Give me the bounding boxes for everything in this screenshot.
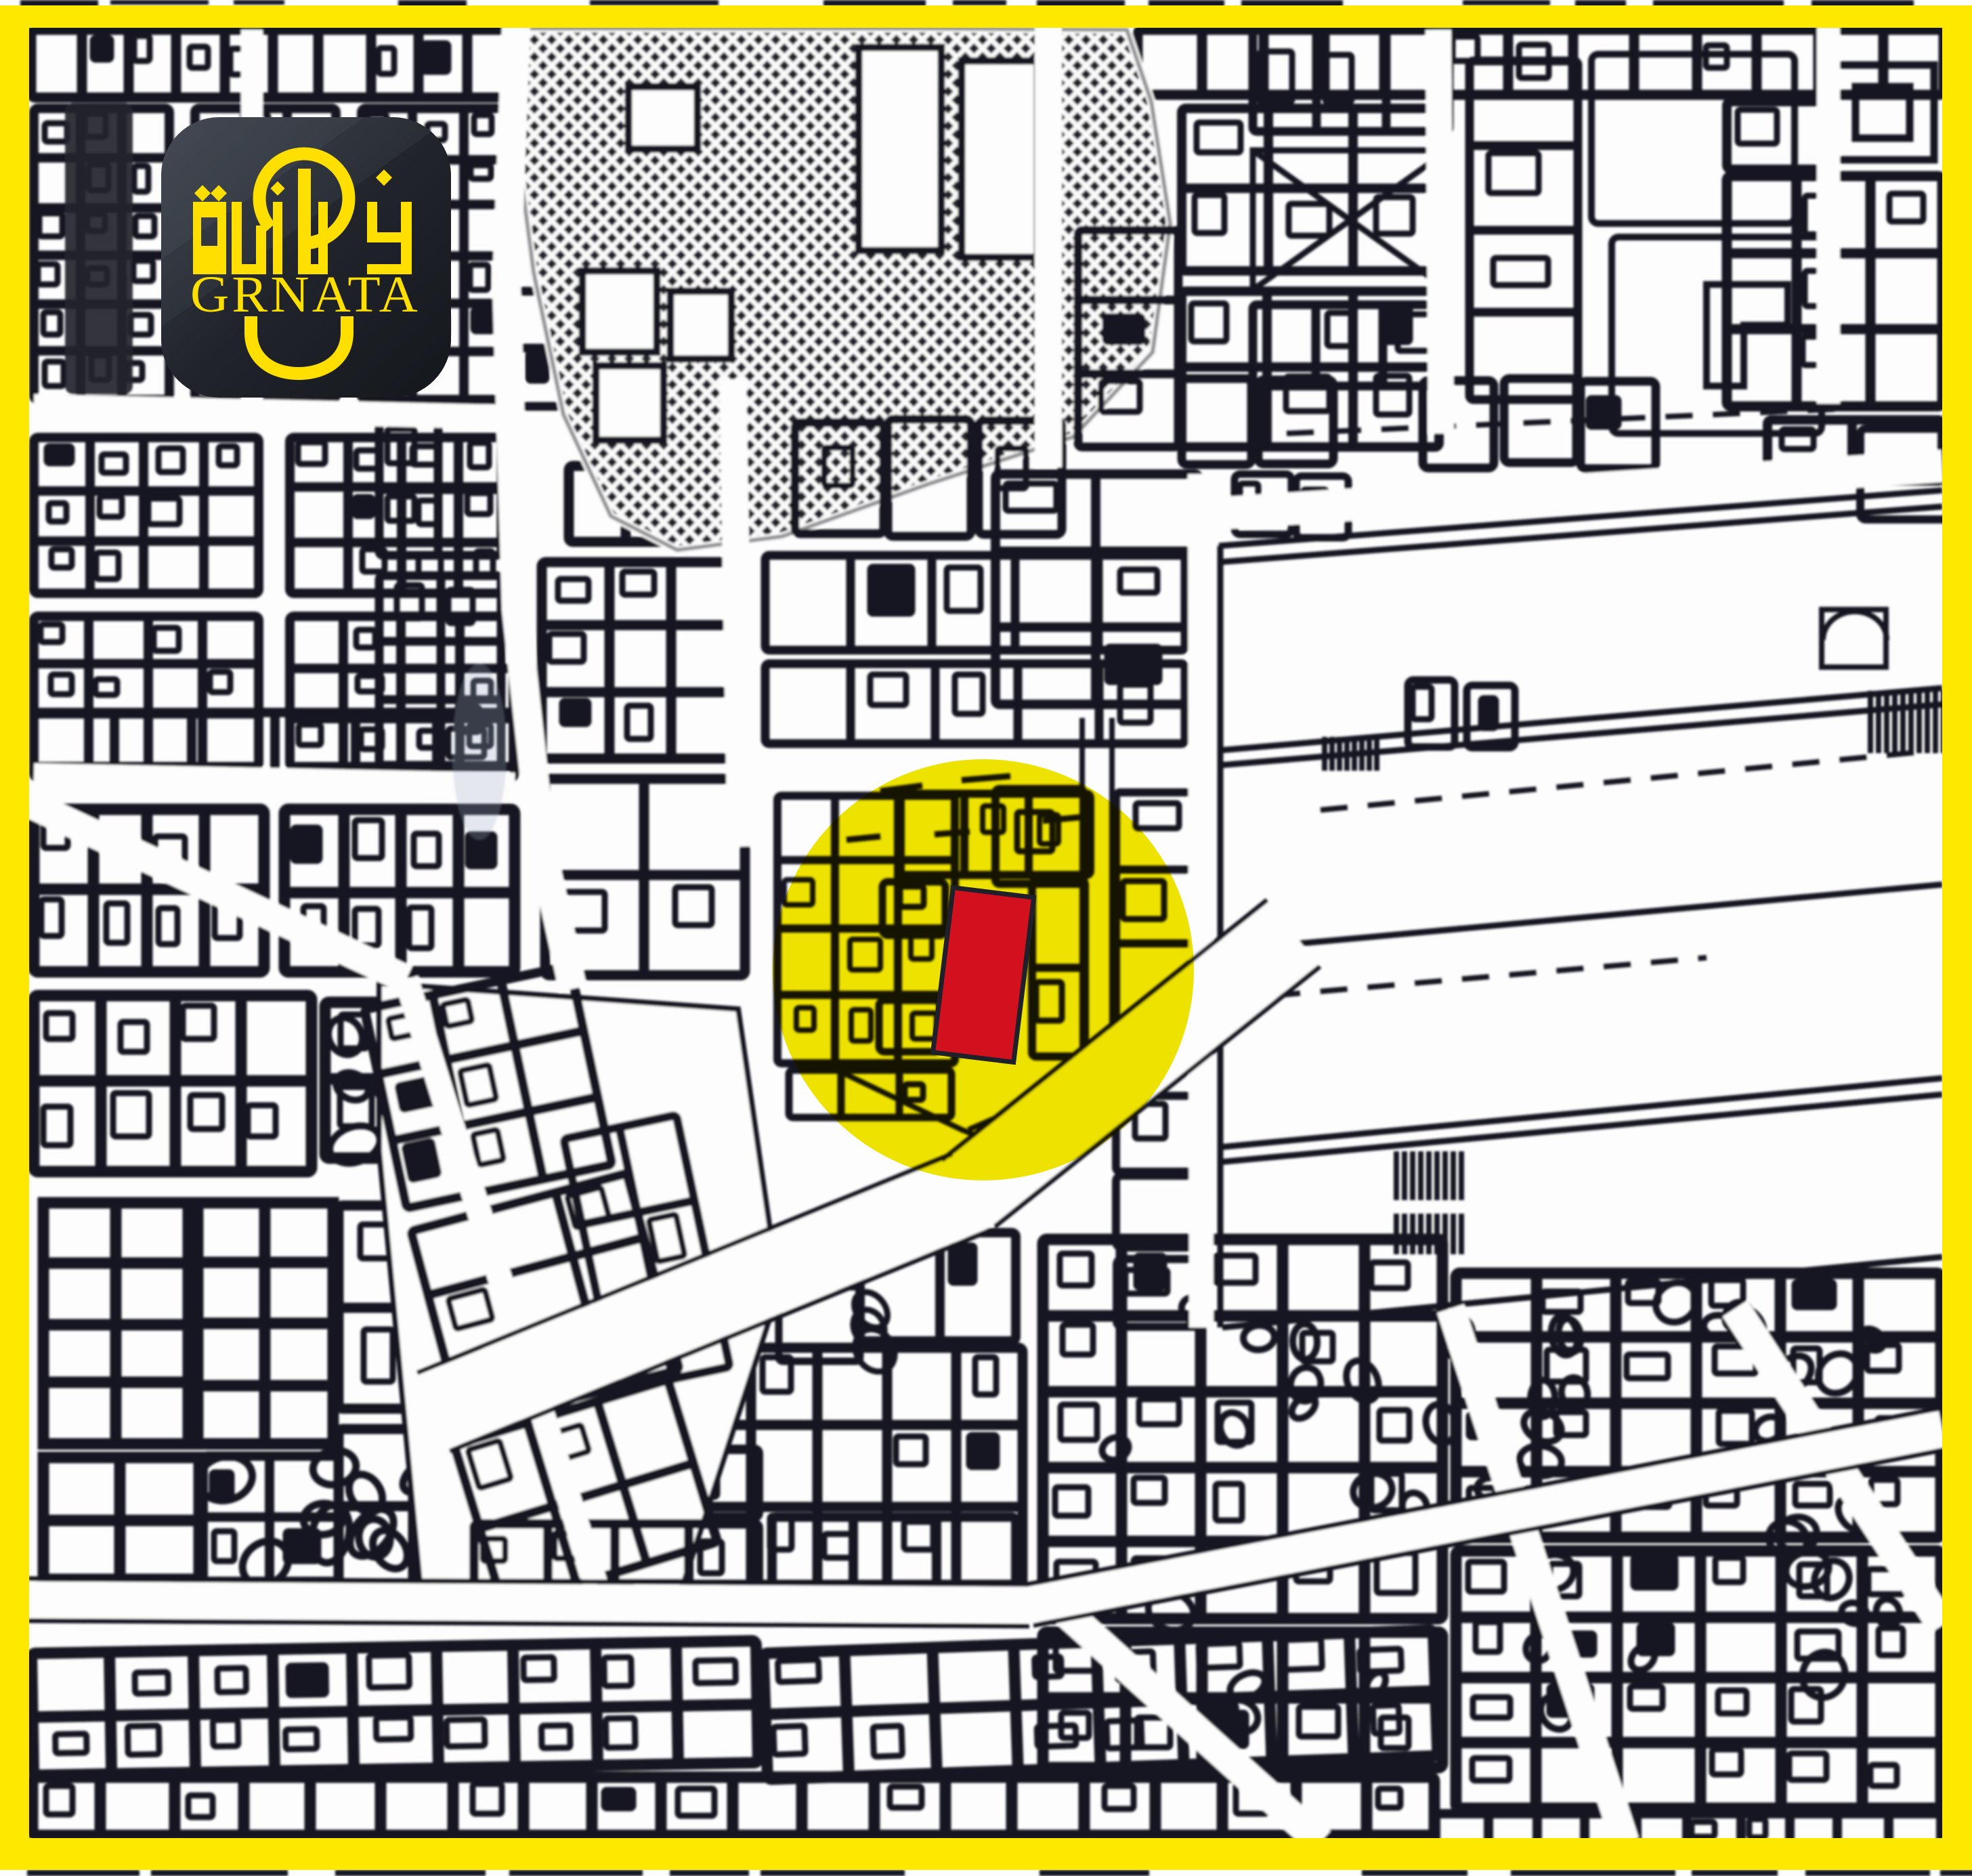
svg-text:GRNATA: GRNATA [190,266,421,323]
